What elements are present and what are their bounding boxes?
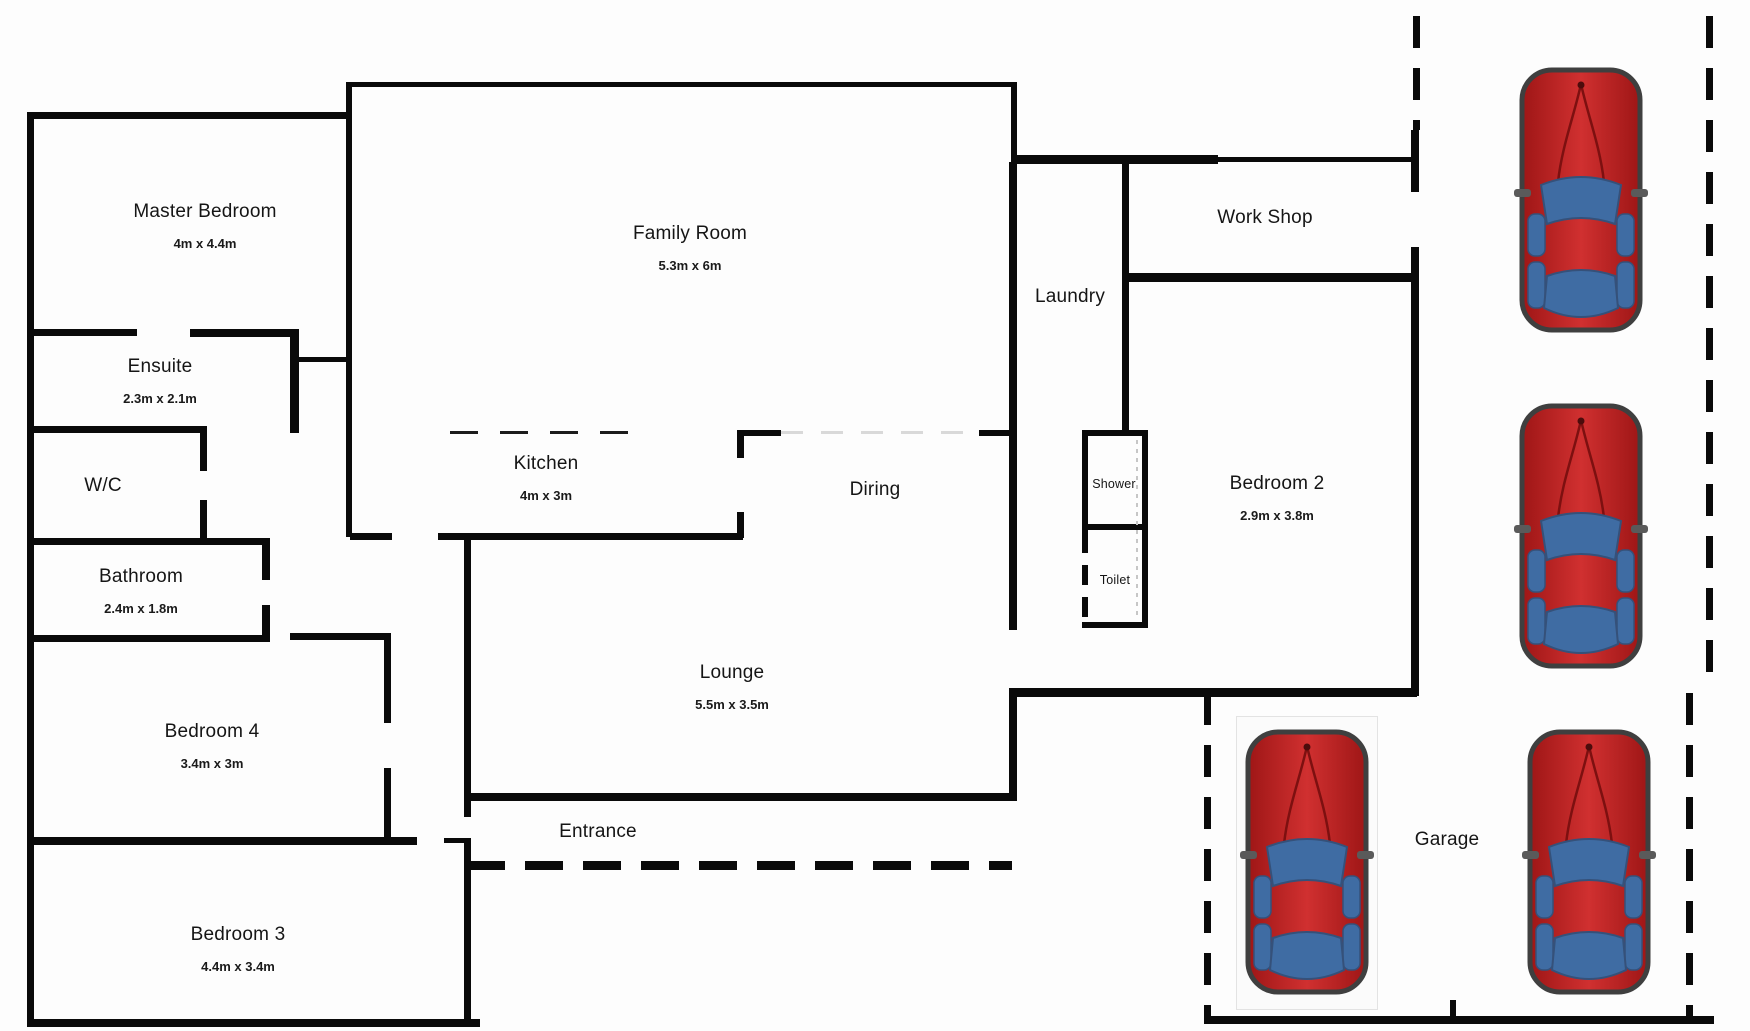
room-label-kitchen: Kitchen 4m x 3m [514, 453, 579, 503]
wall-ensuite-top-a [27, 329, 137, 336]
wall-kitchen-bottom-b [438, 533, 743, 540]
shower-screen-dotted-line [1136, 440, 1138, 618]
driveway-left-dashed [1413, 16, 1420, 130]
room-dims: 5.5m x 3.5m [695, 697, 769, 712]
room-label-master-bedroom: Master Bedroom 4m x 4.4m [133, 201, 276, 251]
wall-laundry-top-thick [1011, 155, 1218, 164]
wall-left-exterior [27, 112, 34, 1027]
wall-kitchen-bottom-a [350, 533, 392, 540]
wall-familyroom-top [346, 82, 1017, 87]
wall-bedroom4-bottom [27, 837, 417, 845]
wall-wing-bottom [1009, 688, 1417, 697]
room-name: Diring [850, 479, 901, 501]
wall-familyroom-right-upper [1011, 82, 1017, 162]
room-label-bedroom-3: Bedroom 3 4.4m x 3.4m [191, 924, 286, 974]
wall-ensuite-bottom [27, 426, 207, 433]
room-dims: 4m x 3m [514, 488, 579, 503]
room-label-dining: Diring [850, 479, 901, 501]
wall-bathroom-bottom [27, 635, 268, 642]
wall-shower-left [1082, 430, 1088, 533]
car-driveway-top [1514, 64, 1648, 336]
car-driveway-middle [1514, 400, 1648, 672]
room-name: Entrance [559, 821, 637, 843]
dining-opening-faint-line [781, 431, 979, 434]
wall-kitchen-right-b [737, 512, 744, 538]
room-dims: 4.4m x 3.4m [191, 959, 286, 974]
wall-bedroom4-top [290, 633, 390, 640]
wall-connector [294, 357, 350, 362]
wall-dining-top-a [737, 430, 781, 436]
wall-master-top [27, 112, 350, 119]
room-dims: 2.9m x 3.8m [1230, 508, 1325, 523]
wall-shower-toilet-divider [1082, 524, 1148, 530]
garage-right-dashed [1686, 693, 1693, 1016]
room-name: Toilet [1100, 573, 1130, 587]
room-label-bathroom: Bathroom 2.4m x 1.8m [99, 566, 183, 616]
room-label-entrance: Entrance [559, 821, 637, 843]
room-dims: 3.4m x 3m [165, 756, 260, 771]
room-name: Family Room [633, 223, 747, 245]
room-label-wc: W/C [84, 475, 122, 497]
room-label-work-shop: Work Shop [1217, 207, 1312, 229]
room-name: Bedroom 2 [1230, 473, 1325, 495]
wall-toilet-bottom [1082, 622, 1148, 628]
wall-bathroom-right-a [262, 538, 270, 580]
wall-right-exterior-a [1411, 130, 1419, 192]
room-name: Ensuite [123, 356, 197, 378]
room-dims: 4m x 4.4m [133, 236, 276, 251]
room-name: Master Bedroom [133, 201, 276, 223]
room-label-lounge: Lounge 5.5m x 3.5m [695, 662, 769, 712]
wall-wc-bottom [27, 538, 270, 545]
wall-dining-top-b [979, 430, 1017, 436]
wall-lounge-bottom [464, 793, 1017, 801]
floor-plan: Master Bedroom 4m x 4.4m Ensuite 2.3m x … [0, 0, 1750, 1031]
driveway-right-dashed [1706, 16, 1713, 692]
room-label-bedroom-2: Bedroom 2 2.9m x 3.8m [1230, 473, 1325, 523]
kitchen-counter-dashes [450, 431, 648, 434]
room-dims: 5.3m x 6m [633, 258, 747, 273]
room-dims: 2.3m x 2.1m [123, 391, 197, 406]
room-label-ensuite: Ensuite 2.3m x 2.1m [123, 356, 197, 406]
room-name: Garage [1415, 829, 1480, 851]
wall-ensuite-right [290, 329, 299, 433]
wall-garage-tick [1450, 1000, 1456, 1018]
room-name: Bedroom 3 [191, 924, 286, 946]
room-name: Work Shop [1217, 207, 1312, 229]
wall-laundry-left [1009, 162, 1017, 630]
room-name: Laundry [1035, 286, 1105, 308]
wall-garage-bottom [1204, 1016, 1714, 1024]
room-label-bedroom-4: Bedroom 4 3.4m x 3m [165, 721, 260, 771]
wall-workshop-bottom [1125, 273, 1417, 282]
room-label-shower: Shower [1092, 477, 1136, 491]
wall-ensuite-top-b [190, 329, 298, 337]
wall-hall-left-a [464, 537, 471, 817]
wall-wc-right-a [200, 426, 207, 471]
room-label-garage: Garage [1415, 829, 1480, 851]
wall-bedroom4-right-b [384, 768, 391, 844]
wall-toilet-left-dashed [1082, 533, 1088, 622]
garage-left-dashed [1204, 693, 1211, 1016]
room-dims: 2.4m x 1.8m [99, 601, 183, 616]
wall-laundry-right [1122, 162, 1129, 433]
wall-right-exterior-b [1411, 247, 1419, 696]
room-name: Bathroom [99, 566, 183, 588]
room-label-family-room: Family Room 5.3m x 6m [633, 223, 747, 273]
room-label-laundry: Laundry [1035, 286, 1105, 308]
wall-workshop-top [1218, 157, 1417, 162]
wall-shower-top [1082, 430, 1148, 436]
car-garage-left [1240, 724, 1374, 1000]
wall-familyroom-left [346, 82, 352, 537]
room-name: W/C [84, 475, 122, 497]
room-name: Bedroom 4 [165, 721, 260, 743]
wall-lounge-right-lower [1009, 688, 1017, 800]
wall-bedroom3-bottom [27, 1019, 480, 1027]
wall-bedroom4-right-a [384, 633, 391, 723]
room-label-toilet: Toilet [1100, 573, 1130, 587]
room-name: Shower [1092, 477, 1136, 491]
room-name: Lounge [695, 662, 769, 684]
car-garage-right [1522, 726, 1656, 998]
room-name: Kitchen [514, 453, 579, 475]
entrance-dashed-line [467, 861, 1012, 870]
